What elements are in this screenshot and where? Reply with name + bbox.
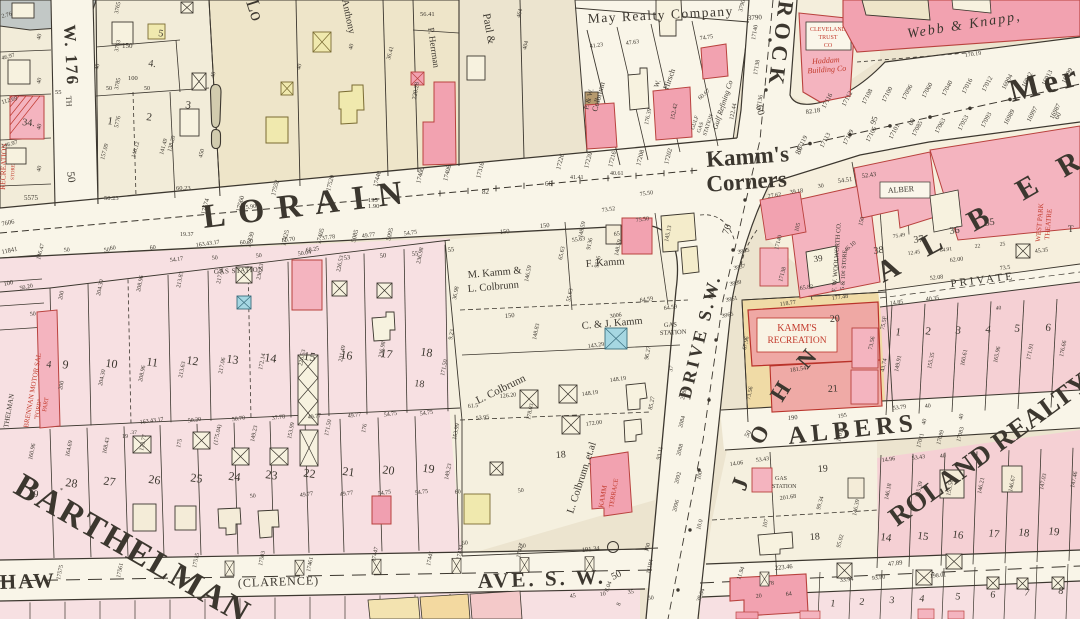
svg-text:34.: 34. [22,117,36,129]
svg-text:50: 50 [647,595,654,602]
svg-text:12: 12 [186,353,200,369]
svg-text:20: 20 [755,593,762,600]
svg-text:GAS: GAS [664,321,678,329]
svg-text:11: 11 [146,354,159,369]
svg-text:22: 22 [303,466,317,482]
svg-text:53: 53 [343,254,350,262]
svg-text:TH: TH [64,96,74,107]
svg-text:60: 60 [454,489,461,496]
svg-text:STATION: STATION [660,329,687,337]
svg-text:82: 82 [482,188,490,196]
svg-text:25: 25 [999,241,1006,248]
svg-text:19: 19 [122,434,128,440]
svg-text:150: 150 [539,222,549,230]
svg-text:65: 65 [613,231,620,238]
svg-text:150: 150 [122,42,133,50]
svg-text:5575: 5575 [24,194,39,202]
svg-text:19: 19 [422,461,436,477]
svg-text:18: 18 [414,378,425,390]
svg-text:3790: 3790 [748,13,763,22]
svg-text:25: 25 [190,470,204,486]
svg-text:T: T [1068,224,1074,234]
svg-text:15: 15 [917,530,930,543]
svg-text:60.23: 60.23 [176,185,191,192]
svg-text:(CLARENCE): (CLARENCE) [238,573,320,590]
svg-text:CO: CO [824,43,833,49]
svg-text:19: 19 [817,463,828,475]
svg-text:AVE. S. W.: AVE. S. W. [477,565,606,593]
svg-text:45: 45 [569,593,576,600]
svg-text:40: 40 [924,403,931,410]
svg-text:24: 24 [228,469,242,485]
svg-text:.37: .37 [130,430,137,436]
svg-text:50: 50 [106,86,112,92]
svg-text:HAW: HAW [0,568,56,594]
svg-text:22: 22 [974,243,981,250]
svg-text:*: * [60,488,63,494]
svg-text:50: 50 [64,171,77,184]
svg-text:KAMM'S: KAMM'S [777,323,817,334]
svg-text:18: 18 [555,449,566,461]
svg-text:14: 14 [880,531,893,544]
svg-text:10: 10 [599,591,606,598]
svg-text:50: 50 [255,253,262,260]
svg-text:41.41: 41.41 [570,175,584,181]
svg-text:50: 50 [63,247,70,254]
svg-text:50.23: 50.23 [104,195,119,202]
svg-text:150: 150 [499,228,509,236]
svg-text:20: 20 [382,462,396,478]
svg-text:30: 30 [817,183,824,190]
svg-text:CLEVELAND: CLEVELAND [810,27,847,33]
svg-text:60: 60 [149,245,156,252]
svg-text:23: 23 [265,467,279,483]
svg-text:50: 50 [249,493,256,500]
svg-text:37: 37 [913,234,924,246]
svg-text:190: 190 [788,414,798,422]
svg-text:73.5: 73.5 [1000,265,1011,272]
svg-text:100: 100 [128,75,138,82]
svg-text:TRUST: TRUST [818,35,837,41]
svg-text:21: 21 [342,464,356,480]
svg-text:21: 21 [827,383,838,395]
svg-text:40: 40 [939,453,946,460]
svg-text:19: 19 [1048,525,1061,538]
svg-text:W. 176: W. 176 [60,24,82,86]
svg-text:50: 50 [517,488,524,495]
svg-text:1.90: 1.90 [368,203,379,210]
svg-text:40.61: 40.61 [610,171,624,177]
svg-text:26: 26 [148,472,162,488]
svg-text:17: 17 [988,527,1001,540]
svg-text:10: 10 [105,356,119,372]
svg-text:55: 55 [55,89,62,96]
svg-text:27: 27 [103,474,117,490]
svg-text:19.37: 19.37 [180,232,194,238]
svg-text:STORE: STORE [11,164,17,180]
svg-text:50: 50 [144,86,150,92]
svg-text:36: 36 [949,225,960,237]
svg-text:38: 38 [873,245,884,257]
svg-text:18: 18 [420,345,434,361]
svg-text:4.: 4. [148,58,157,70]
svg-text:64: 64 [785,591,792,598]
svg-text:55: 55 [447,246,454,254]
svg-text:50: 50 [29,311,36,318]
svg-text:20: 20 [829,313,840,325]
svg-text:18: 18 [1018,526,1031,539]
svg-text:ALBER: ALBER [888,184,915,195]
svg-text:56.41: 56.41 [420,11,435,18]
svg-text:GAS: GAS [775,476,787,482]
svg-text:18: 18 [809,531,820,543]
svg-text:RECREATION: RECREATION [767,336,826,346]
svg-text:61.5: 61.5 [468,403,479,410]
svg-text:150: 150 [504,312,514,320]
svg-text:28: 28 [65,475,79,491]
svg-text:STATION: STATION [772,484,797,490]
svg-text:29: 29 [28,488,39,500]
svg-text:16: 16 [952,529,965,542]
svg-text:50: 50 [379,252,386,260]
svg-text:66: 66 [545,180,553,188]
svg-text:35: 35 [627,589,634,596]
svg-text:60: 60 [109,245,116,252]
svg-text:13: 13 [226,352,240,368]
svg-text:40: 40 [995,305,1002,312]
svg-text:50: 50 [211,255,218,262]
svg-text:35: 35 [984,217,995,229]
svg-text:55: 55 [411,250,418,258]
svg-text:195: 195 [837,413,847,420]
